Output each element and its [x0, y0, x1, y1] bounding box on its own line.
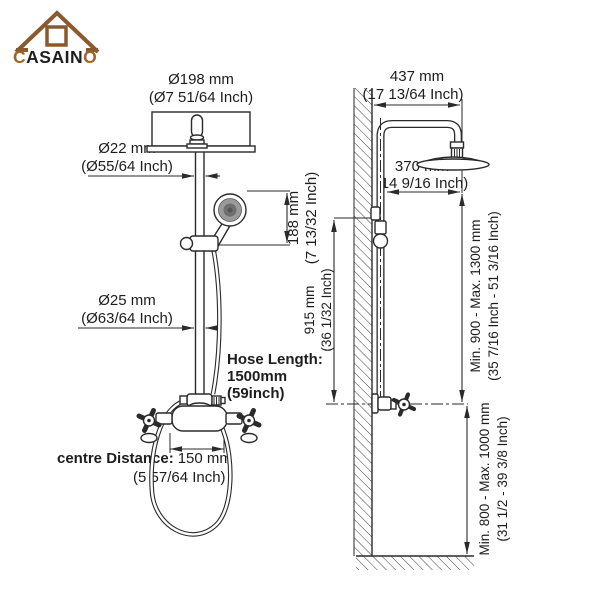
handheld-offset-inch-label: (7 13/32 Inch): [303, 172, 320, 265]
front-view: Ø198 mm (Ø7 51/64 Inch) Ø22 mm (Ø55/64 I…: [57, 71, 323, 534]
valve-range-mm-label: Min. 800 - Max. 1000 mm: [477, 402, 492, 555]
dim-valve-height-range: Min. 800 - Max. 1000 mm (31 1/2 - 39 3/8…: [467, 402, 510, 555]
handheld-offset-mm-label: 188 mm: [285, 191, 302, 245]
handheld-shower: [181, 194, 247, 251]
side-valve: [372, 394, 414, 415]
slider-knob-side: [374, 234, 388, 248]
faucet-body: [172, 406, 227, 431]
floor-section: [356, 556, 474, 570]
arm-reach-inch-label: (17 13/64 Inch): [363, 86, 464, 103]
centre-distance-caption: centre Distance:: [57, 450, 174, 467]
wall-bracket: [371, 207, 380, 220]
head-offset-inch-label: (14 9/16 Inch): [376, 175, 469, 192]
front-shower-head: [147, 112, 255, 152]
head-diameter-inch-label: (Ø7 51/64 Inch): [149, 89, 253, 106]
brand-logo: CASAINO: [13, 13, 98, 67]
bar-height-inch-label: (36 1/32 Inch): [319, 268, 334, 351]
wall-union-left: [141, 434, 157, 443]
lower-pipe-mm-label: Ø25 mm: [98, 292, 156, 309]
pipe-fitting: [375, 221, 386, 234]
head-diameter-mm-label: Ø198 mm: [168, 71, 234, 88]
arm-reach-mm-label: 437 mm: [390, 68, 444, 85]
side-view: 437 mm (17 13/64 Inch) 370 mm (14 9/16 I…: [302, 68, 510, 570]
hose-length-inch-label: (59inch): [227, 385, 285, 402]
centre-distance-inch-label: (5 57/64 Inch): [133, 469, 226, 486]
centre-distance-mm: 150 mm: [178, 450, 232, 467]
bar-height-mm-label: 915 mm: [302, 286, 317, 335]
shower-dimension-diagram: CASAINO 437 mm (17 13/64 Inch) 370 mm (1…: [0, 0, 600, 600]
hose-length-note: Hose Length: 1500mm (59inch): [227, 351, 323, 402]
valve-range-inch-label: (31 1/2 - 39 3/8 Inch): [495, 416, 510, 541]
slider-knob-front: [181, 238, 193, 250]
brand-name-middle: ASAIN: [26, 47, 83, 67]
lower-pipe-inch-label: (Ø63/64 Inch): [81, 310, 173, 327]
wall-section: [354, 88, 372, 556]
hose-length-mm-label: 1500mm: [227, 368, 287, 385]
centre-distance-label: centre Distance:150 mm: [57, 450, 232, 467]
side-shower-head: [417, 142, 489, 170]
head-range-mm-label: Min. 900 - Max. 1300 mm: [468, 219, 483, 372]
brand-name-suffix: O: [83, 47, 97, 67]
front-riser-pipe: [195, 150, 205, 400]
head-range-inch-label: (35 7/16 Inch - 51 3/16 Inch): [486, 211, 501, 381]
brand-name: CASAINO: [13, 47, 97, 67]
wall-union-right: [241, 434, 257, 443]
brand-name-prefix: C: [13, 47, 26, 67]
upper-pipe-inch-label: (Ø55/64 Inch): [81, 158, 173, 175]
dim-head-height-range: Min. 900 - Max. 1300 mm (35 7/16 Inch - …: [462, 194, 501, 402]
hose-length-label: Hose Length:: [227, 351, 323, 368]
slider-bracket: [190, 236, 218, 251]
shower-hose: [152, 247, 231, 534]
